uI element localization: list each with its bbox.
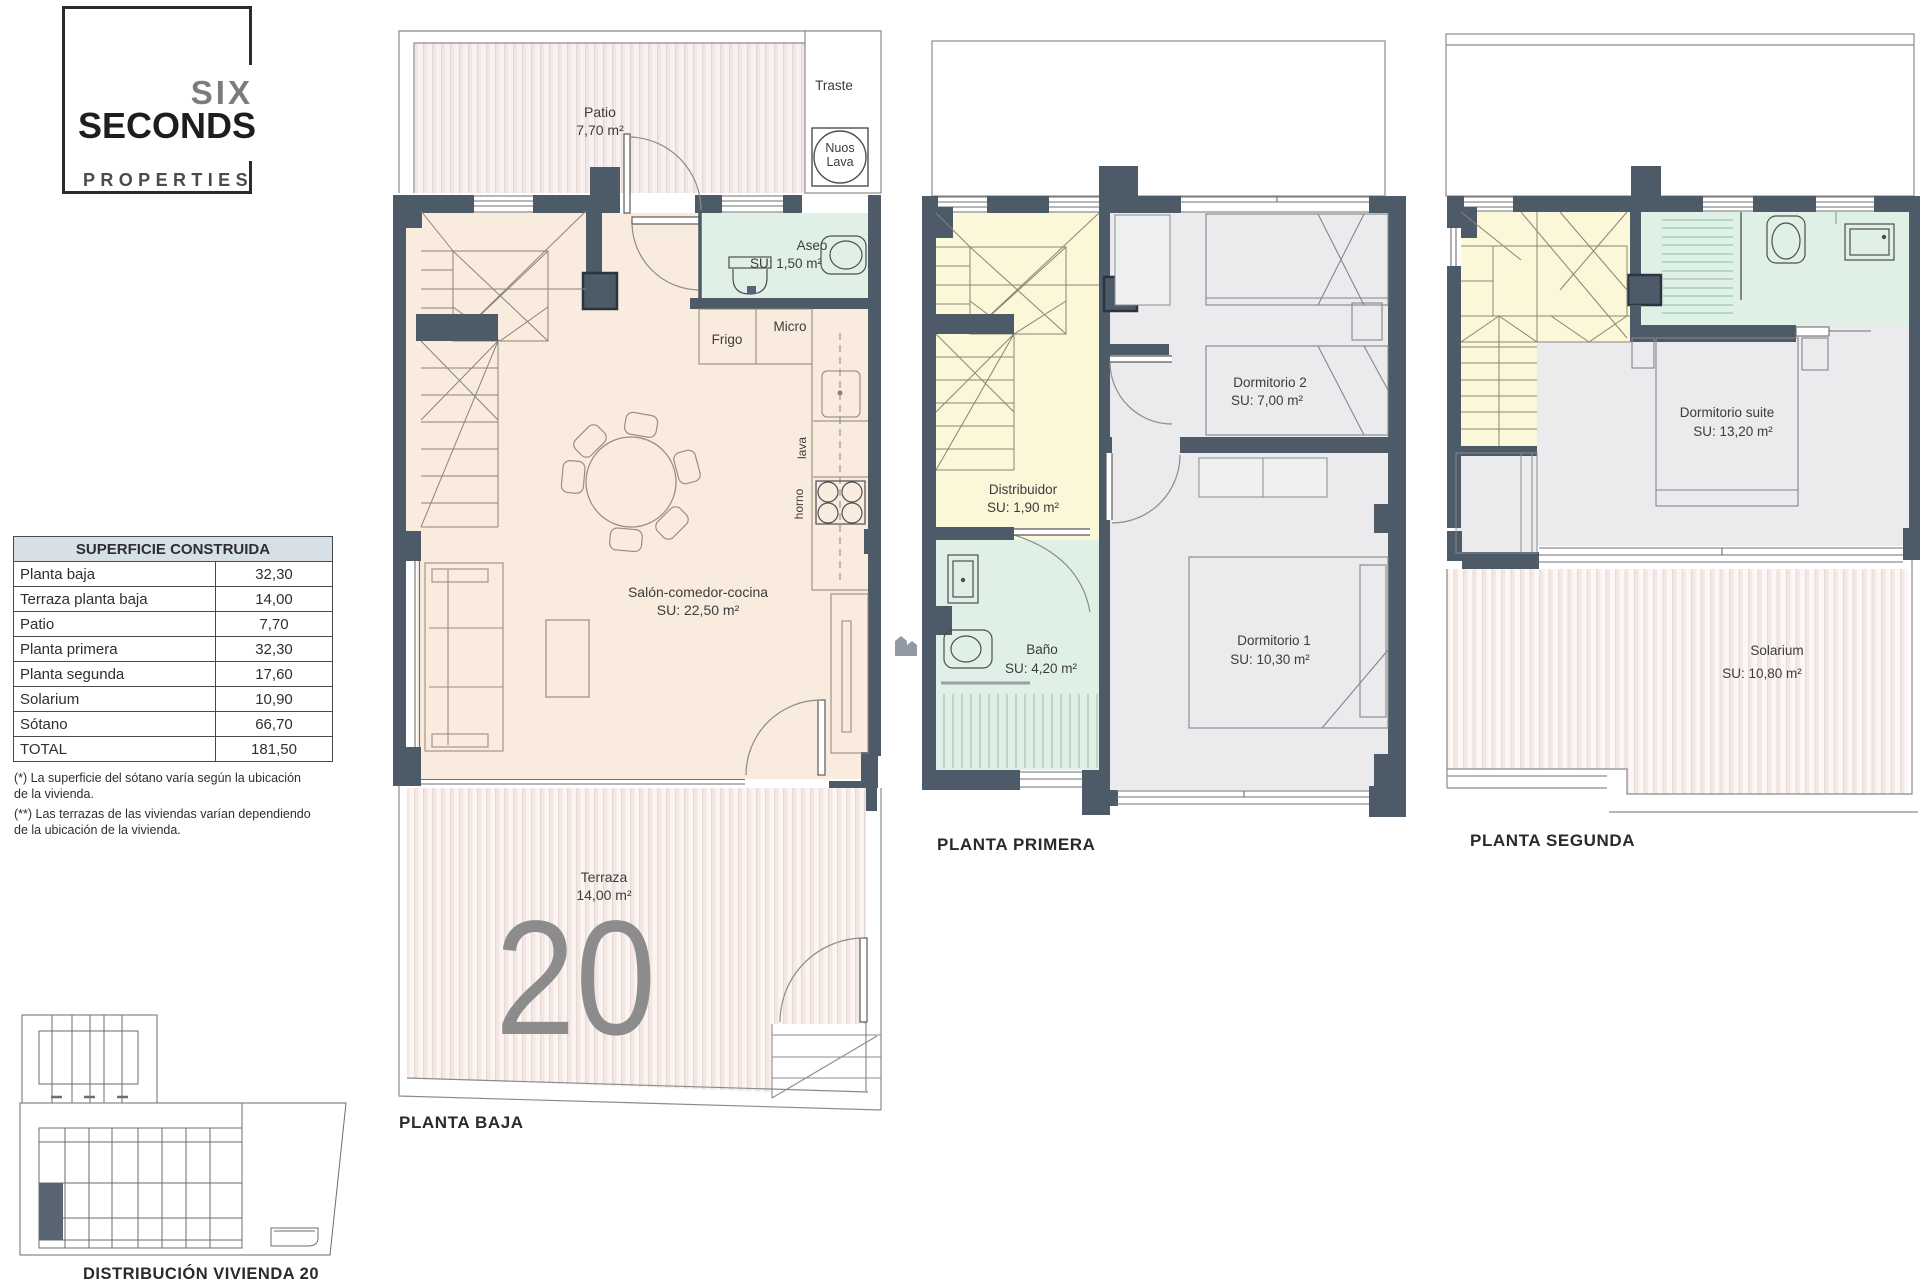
svg-text:Patio: Patio [584, 104, 616, 120]
svg-text:SU: 1,90 m²: SU: 1,90 m² [987, 500, 1060, 515]
svg-text:SU: 10,30 m²: SU: 10,30 m² [1230, 652, 1310, 667]
svg-text:Frigo: Frigo [712, 332, 743, 347]
svg-text:SU: 7,00 m²: SU: 7,00 m² [1231, 393, 1304, 408]
svg-text:Micro: Micro [774, 319, 807, 334]
svg-text:PLANTA BAJA: PLANTA BAJA [399, 1113, 524, 1132]
svg-text:Nuos: Nuos [825, 141, 854, 155]
svg-text:PLANTA PRIMERA: PLANTA PRIMERA [937, 835, 1096, 854]
svg-text:Dormitorio 2: Dormitorio 2 [1233, 375, 1307, 390]
svg-text:Lava: Lava [826, 155, 853, 169]
svg-text:Baño: Baño [1026, 642, 1058, 657]
svg-text:horno: horno [792, 488, 806, 519]
svg-text:Traste: Traste [815, 78, 853, 93]
svg-text:Dormitorio 1: Dormitorio 1 [1237, 633, 1311, 648]
svg-text:7,70 m²: 7,70 m² [576, 122, 624, 138]
svg-text:PLANTA SEGUNDA: PLANTA SEGUNDA [1470, 831, 1635, 850]
svg-text:Salón-comedor-cocina: Salón-comedor-cocina [628, 584, 768, 600]
svg-text:SU: 1,50 m²: SU: 1,50 m² [750, 256, 823, 271]
svg-text:Solarium: Solarium [1750, 643, 1803, 658]
svg-text:DISTRIBUCIÓN VIVIENDA 20: DISTRIBUCIÓN VIVIENDA 20 [83, 1264, 319, 1280]
svg-text:SU: 13,20 m²: SU: 13,20 m² [1693, 424, 1773, 439]
svg-text:SU: 4,20 m²: SU: 4,20 m² [1005, 661, 1078, 676]
svg-text:Dormitorio suite: Dormitorio suite [1680, 405, 1775, 420]
svg-text:SU: 10,80 m²: SU: 10,80 m² [1722, 666, 1802, 681]
svg-text:SU: 22,50 m²: SU: 22,50 m² [657, 602, 740, 618]
svg-text:Distribuidor: Distribuidor [989, 482, 1058, 497]
svg-text:Terraza: Terraza [581, 869, 628, 885]
svg-text:20: 20 [495, 886, 656, 1069]
svg-text:lava: lava [795, 437, 809, 459]
